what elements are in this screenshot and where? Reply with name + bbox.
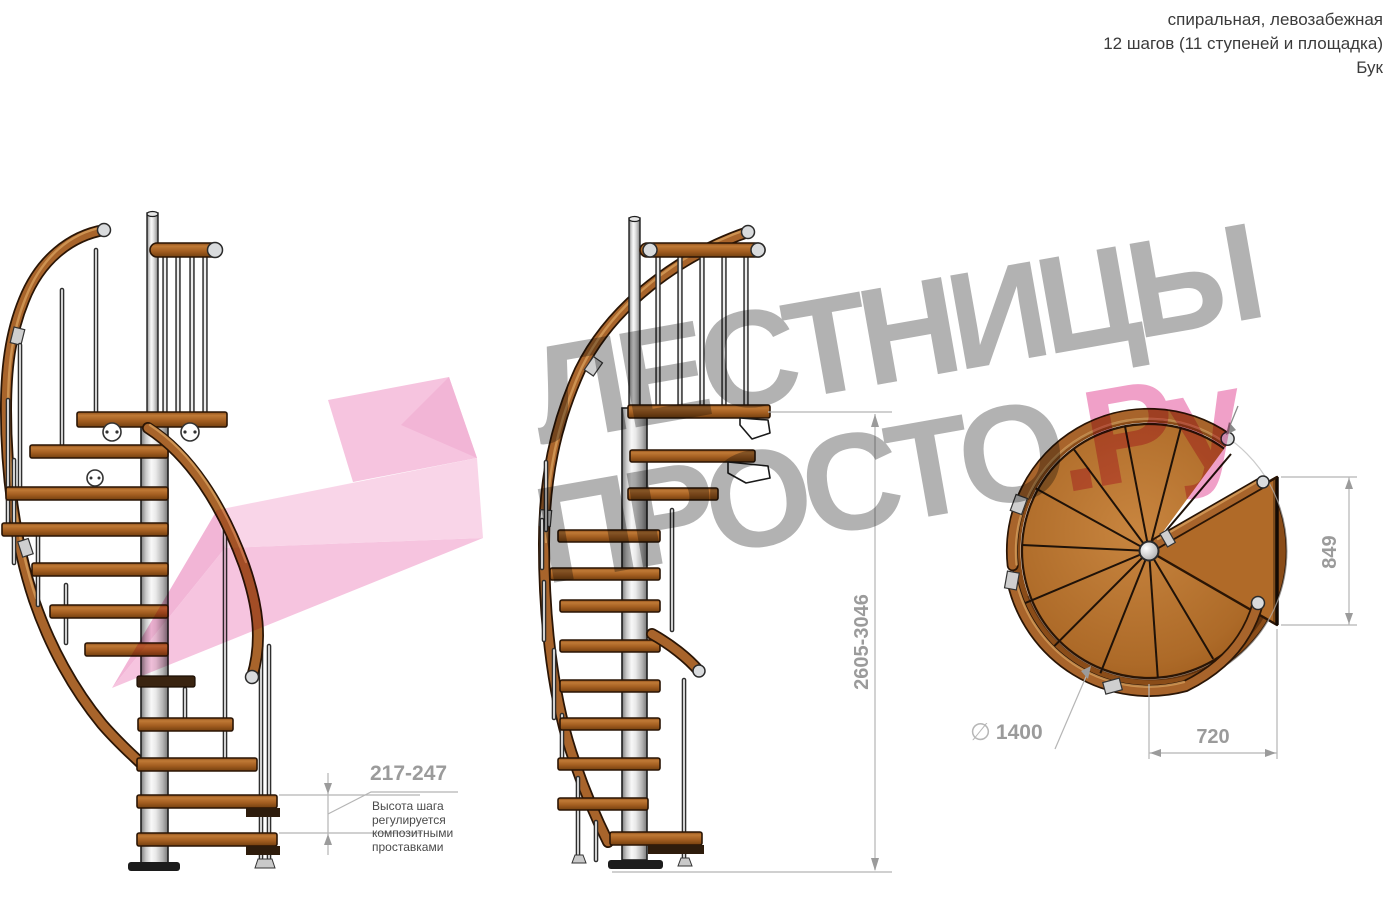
diameter-leader xyxy=(1055,666,1091,749)
note-line: проставками xyxy=(372,841,453,855)
dimension-platform-depth: 849 xyxy=(1319,518,1341,586)
diameter-value: 1400 xyxy=(996,722,1043,744)
landing-handrail xyxy=(640,243,765,257)
dimension-platform-length: 720 xyxy=(1173,726,1253,748)
handrail-pointer xyxy=(1226,406,1238,435)
note-line: Высота шага xyxy=(372,800,453,814)
handrail-end-cap xyxy=(742,226,755,239)
baluster-foot xyxy=(255,859,275,868)
handrail-end-cap xyxy=(1257,476,1269,488)
spec-line-steps: 12 шагов (11 ступеней и площадка) xyxy=(1103,32,1383,56)
logo-arrow xyxy=(95,370,495,700)
dimension-step-height: 217-247 xyxy=(370,763,466,785)
base-flange xyxy=(128,862,180,871)
step-bracket xyxy=(246,808,280,817)
drawing-canvas: спиральная, левозабежная 12 шагов (11 ст… xyxy=(0,0,1400,907)
dimension-total-height: 2605-3046 xyxy=(851,572,873,712)
side-view-front-drawing xyxy=(500,210,900,882)
diameter-icon: ∅ xyxy=(970,722,991,744)
spec-header: спиральная, левозабежная 12 шагов (11 ст… xyxy=(1103,8,1383,80)
landing-railing xyxy=(640,243,765,405)
landing-platform xyxy=(628,405,770,418)
pole-top xyxy=(1140,542,1159,561)
platform-bracket xyxy=(740,418,770,439)
handrail-end-cap xyxy=(693,665,705,677)
spec-line-material: Бук xyxy=(1103,56,1383,80)
spec-line-type: спиральная, левозабежная xyxy=(1103,8,1383,32)
note-line: регулируется xyxy=(372,814,453,828)
handrail-stub xyxy=(652,634,705,677)
step-bracket xyxy=(648,845,704,854)
handrail-end-cap xyxy=(1252,597,1265,610)
base-flange xyxy=(608,860,663,869)
handrail-end-cap xyxy=(98,224,111,237)
note-line: композитными xyxy=(372,827,453,841)
step-bracket xyxy=(246,846,280,855)
dimension-diameter: ∅ 1400 xyxy=(970,722,1043,744)
platform-bracket xyxy=(728,462,770,483)
step-height-note: Высота шага регулируется композитными пр… xyxy=(372,800,453,854)
